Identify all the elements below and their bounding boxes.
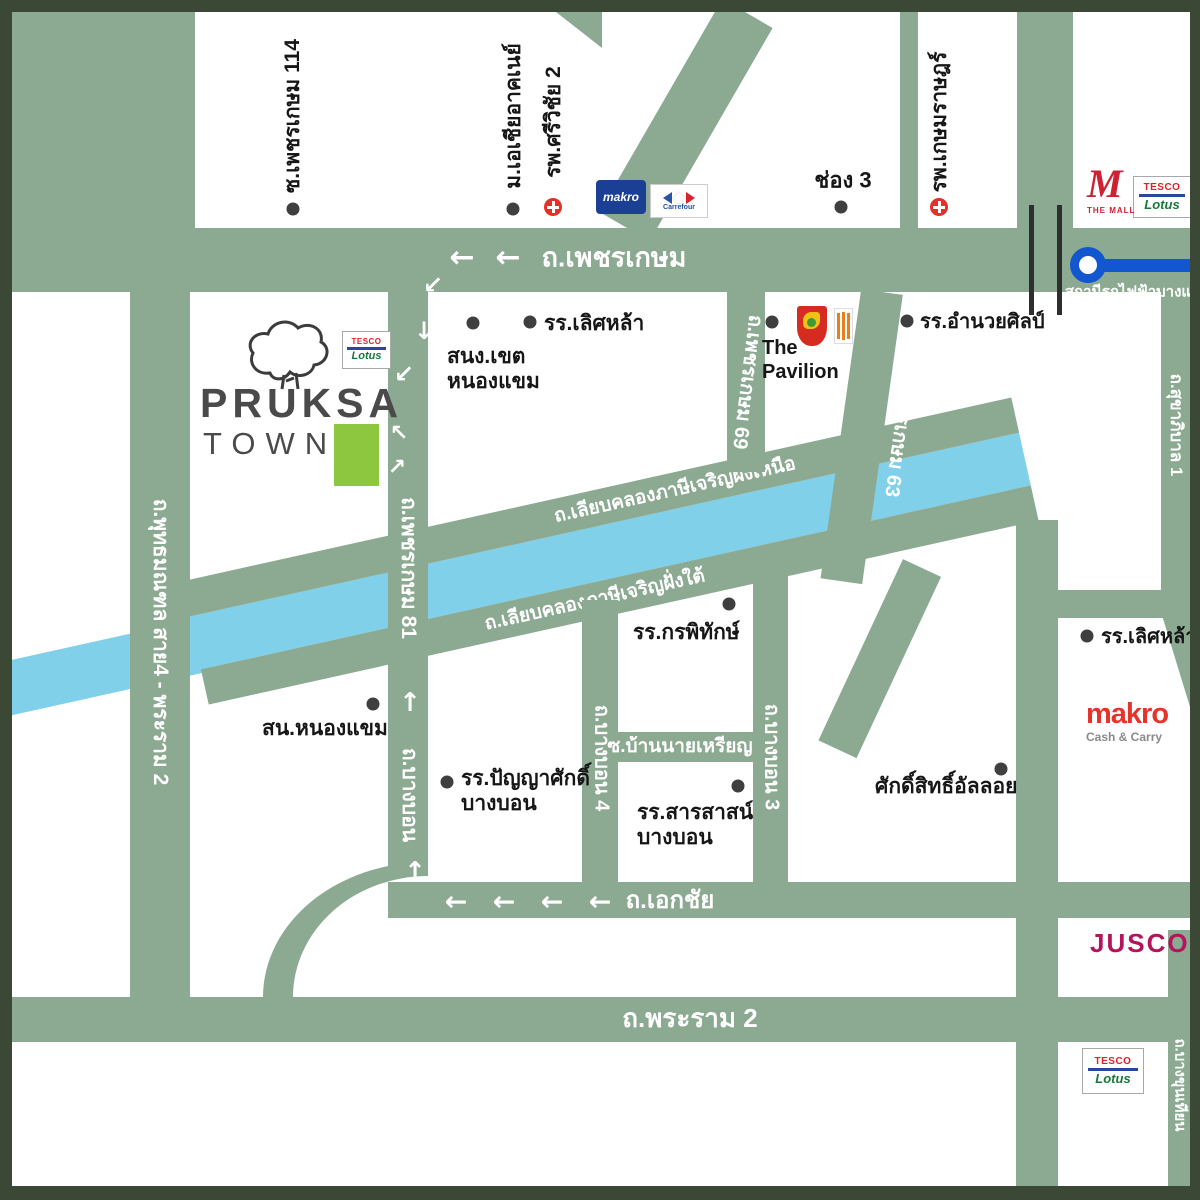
pruksa-site-marker	[334, 424, 379, 486]
arrow-up-icon: ↑	[399, 690, 421, 716]
soi-strip-1	[900, 12, 918, 228]
phetkasem81-label: ถ.เพชรเกษม 81	[396, 497, 420, 639]
poi-dot	[732, 780, 745, 793]
poi-saksit-label: ศักดิ์สิทธิ์อัลลอย	[875, 774, 1017, 799]
bts-station-label: สถานีรถไฟฟ้าบางแค	[1065, 283, 1200, 300]
hospital-cross-icon	[930, 198, 948, 216]
phetkasem-label: ถ.เพชรเกษม	[542, 242, 687, 273]
bts-station-icon	[1070, 247, 1106, 283]
poi-dot	[723, 598, 736, 611]
arrow-left-icon: ←	[493, 889, 516, 916]
arrow-left-icon: ←	[449, 243, 474, 273]
railway-line-icon	[1029, 205, 1034, 315]
poi-dot	[766, 316, 779, 329]
poi-dot	[467, 317, 480, 330]
tesco-lotus-logo: TESCO Lotus	[1133, 176, 1191, 218]
rama2-label: ถ.พระราม 2	[622, 1004, 757, 1034]
makro-cash-carry-logo: makro Cash & Carry	[1086, 700, 1168, 743]
poi-pavilion-label: The Pavilion	[762, 336, 839, 384]
poi-dot	[524, 316, 537, 329]
block-corner-cut	[556, 12, 602, 48]
poi-district-office-label: สนง.เขต หนองแขม	[447, 344, 540, 394]
poi-soi114-label: ซ.เพชรเกษม 114	[281, 39, 305, 193]
poi-amnuaysilp-label: รร.อำนวยศิลป์	[920, 310, 1045, 334]
map-frame-top	[0, 0, 1200, 12]
map-canvas: ถ.เลียบคลองภาษีเจริญฝั่งเหนือ ถ.เลียบคลอ…	[0, 0, 1200, 1200]
rail-corridor	[1017, 12, 1073, 228]
poi-dot	[1081, 630, 1094, 643]
poi-sarasas-label: รร.สารสาสน์ บางบอน	[637, 800, 753, 850]
the-mall-label: THE MALL	[1087, 206, 1135, 215]
pavilion-lantern-icon	[834, 308, 853, 344]
bangbon3-label: ถ.บางบอน 3	[760, 704, 783, 810]
poi-kasemrad-label: รพ.เกษมราษฎร์	[928, 52, 952, 193]
arrow-left-icon: ←	[445, 889, 468, 916]
tesco-lotus-logo: TESCO Lotus	[1082, 1048, 1144, 1094]
poi-panyasak-label: รร.ปัญญาศักดิ์ บางบอน	[461, 766, 590, 816]
hospital-cross-icon	[544, 198, 562, 216]
arrow-down-icon: ↓	[414, 319, 434, 343]
bangbon-label: ถ.บางบอน	[397, 748, 421, 842]
ekachai-label: ถ.เอกชัย	[626, 887, 715, 915]
poi-dot	[287, 203, 300, 216]
pruksa-logo-sub: TOWN	[203, 426, 337, 462]
arrow-up-right-icon: ↗	[388, 457, 406, 479]
pavilion-shield-icon	[797, 306, 827, 346]
railway-line-icon	[1057, 205, 1062, 315]
poi-lertlah2-label: รร.เลิศหล้า	[1101, 625, 1197, 649]
the-mall-m-icon: M	[1087, 164, 1123, 204]
poi-channel3-label: ช่อง 3	[814, 167, 871, 192]
arrow-left-icon: ←	[495, 243, 520, 273]
sukhaphiban1-label: ถ.สุขาภิบาล 1	[1166, 374, 1186, 477]
poi-dot	[507, 203, 520, 216]
poi-srivichai-label: รพ.ศรีวิชัย 2	[542, 66, 566, 177]
east-vertical-road	[1016, 520, 1058, 1188]
map-frame-right	[1190, 0, 1200, 1200]
map-frame-left	[0, 0, 12, 1200]
soi-ban-nai-rian-label: ซ.บ้านนายเหรียญ	[607, 736, 752, 758]
poi-dot	[835, 201, 848, 214]
bangbon4-label: ถ.บางบอน 4	[590, 705, 613, 811]
bangkhunthian-label: ถ.บางขุนเทียน	[1171, 1038, 1188, 1131]
makro-logo: makro	[596, 180, 646, 214]
rama2-road	[10, 997, 1190, 1042]
poi-police-label: สน.หนองแขม	[262, 716, 388, 741]
arrow-up-icon: ↑	[404, 859, 426, 885]
map-frame-bottom	[0, 1186, 1200, 1200]
poi-sea-university-label: ม.เอเชียอาคเนย์	[502, 43, 526, 189]
jusco-logo: JUSCO	[1090, 928, 1190, 959]
arrow-down-left-icon: ↙	[423, 273, 443, 297]
poi-kornpitak-label: รร.กรพิทักษ์	[633, 620, 740, 645]
bts-line	[1097, 259, 1190, 272]
arrow-left-icon: ←	[541, 889, 564, 916]
carrefour-logo: Carrefour	[650, 184, 708, 218]
tesco-lotus-logo: TESCO Lotus	[342, 331, 391, 369]
pruksa-logo-name: PRUKSA	[200, 380, 403, 427]
poi-dot	[441, 776, 454, 789]
poi-dot	[901, 315, 914, 328]
poi-dot	[367, 698, 380, 711]
poi-lertlah-label: รร.เลิศหล้า	[544, 311, 644, 336]
arrow-left-icon: ←	[589, 889, 612, 916]
phutthamonthon-label: ถ.พุทธมณฑล สาย4 - พระราม 2	[148, 499, 172, 786]
